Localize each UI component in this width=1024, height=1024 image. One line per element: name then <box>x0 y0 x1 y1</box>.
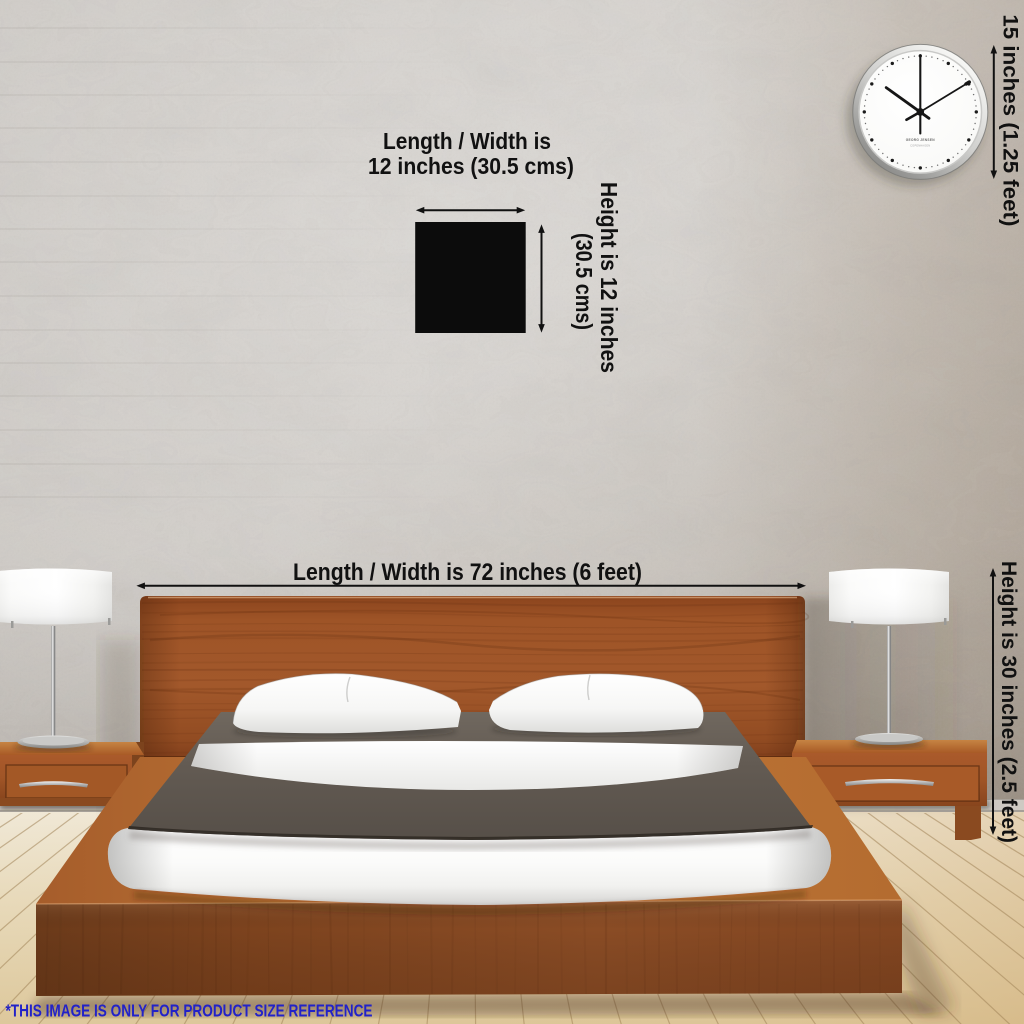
svg-text:15 inches (1.25 feet): 15 inches (1.25 feet) <box>999 14 1023 226</box>
svg-text:COPENHAGEN: COPENHAGEN <box>910 145 930 148</box>
svg-text:GEORG JENSEN: GEORG JENSEN <box>906 138 936 142</box>
svg-text:Length / Width is: Length / Width is <box>383 128 551 154</box>
svg-text:12 inches (30.5 cms): 12 inches (30.5 cms) <box>368 153 574 179</box>
svg-text:Height is 12 inches: Height is 12 inches <box>596 182 622 373</box>
svg-text:*THIS IMAGE IS ONLY FOR PRODUC: *THIS IMAGE IS ONLY FOR PRODUCT SIZE REF… <box>6 1001 373 1021</box>
svg-text:Height is 30 inches (2.5 feet): Height is 30 inches (2.5 feet) <box>997 561 1020 843</box>
svg-text:(30.5 cms): (30.5 cms) <box>571 233 597 330</box>
svg-text:Length / Width is 72 inches (6: Length / Width is 72 inches (6 feet) <box>293 559 642 586</box>
